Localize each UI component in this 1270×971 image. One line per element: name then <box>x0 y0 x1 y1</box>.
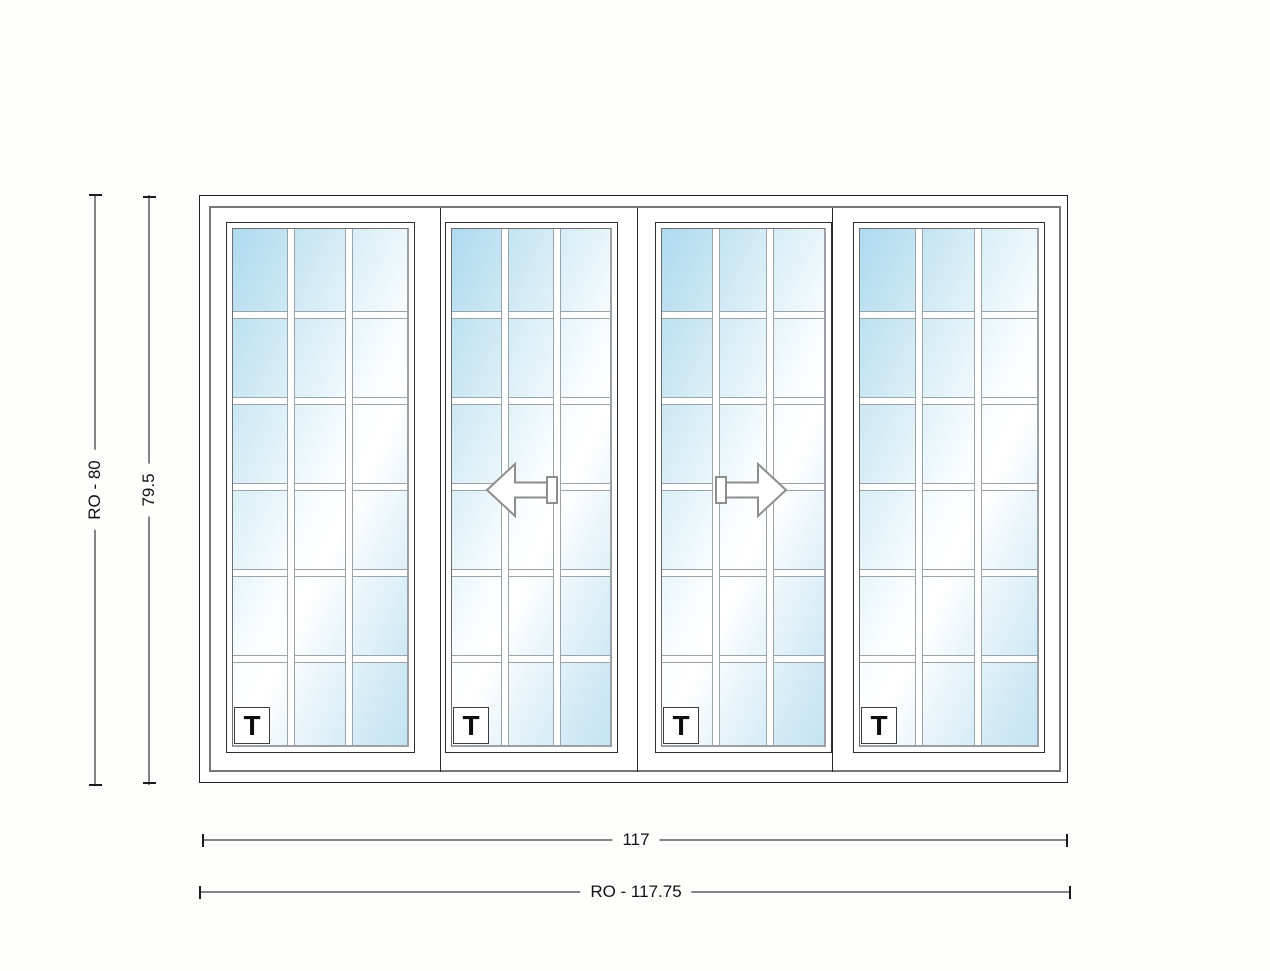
muntin-bar-horizontal <box>860 569 1037 577</box>
door-panel-4: T <box>853 222 1045 753</box>
muntin-bar-vertical <box>287 229 295 745</box>
muntin-bar-horizontal <box>662 397 824 405</box>
dimension-tick <box>1069 886 1071 899</box>
muntin-bar-horizontal <box>233 397 407 405</box>
dimension-label-height-ro: RO - 80 <box>83 450 107 530</box>
muntin-bar-horizontal <box>662 569 824 577</box>
dimension-label-width-frame: 117 <box>612 828 659 852</box>
slide-direction-right-arrow-icon <box>710 461 788 519</box>
door-panel-1: T <box>226 222 415 753</box>
dimension-label-height-frame: 79.5 <box>137 463 161 516</box>
muntin-bar-horizontal <box>662 655 824 663</box>
tempered-glass-label: T <box>663 707 699 744</box>
frame-divider-2 <box>637 208 638 772</box>
dimension-tick <box>199 886 201 899</box>
muntin-bar-vertical <box>345 229 353 745</box>
muntin-bar-horizontal <box>233 569 407 577</box>
muntin-bar-vertical <box>974 229 982 745</box>
dimension-tick <box>89 194 102 196</box>
muntin-bar-horizontal <box>233 483 407 491</box>
muntin-bar-vertical <box>915 229 923 745</box>
dimension-tick <box>143 196 156 198</box>
muntin-bar-horizontal <box>662 311 824 319</box>
muntin-bar-horizontal <box>452 397 610 405</box>
muntin-bar-horizontal <box>452 655 610 663</box>
tempered-glass-label: T <box>861 707 897 744</box>
frame-divider-3 <box>832 208 833 772</box>
muntin-bar-horizontal <box>452 569 610 577</box>
muntin-bar-horizontal <box>233 655 407 663</box>
muntin-bar-horizontal <box>233 311 407 319</box>
tempered-glass-label: T <box>234 707 270 744</box>
dimension-tick <box>202 834 204 847</box>
muntin-bar-horizontal <box>860 311 1037 319</box>
slide-direction-left-arrow-icon <box>485 461 563 519</box>
window-elevation-drawing: T T T T RO - 80 79.5 117 <box>0 0 1270 971</box>
dimension-label-width-ro: RO - 117.75 <box>580 880 691 904</box>
muntin-bar-horizontal <box>860 655 1037 663</box>
glass: T <box>859 228 1039 747</box>
muntin-bar-horizontal <box>452 311 610 319</box>
frame-divider-1 <box>440 208 441 772</box>
tempered-glass-label: T <box>453 707 489 744</box>
muntin-bar-horizontal <box>860 397 1037 405</box>
dimension-tick <box>89 784 102 786</box>
dimension-tick <box>143 782 156 784</box>
glass: T <box>232 228 409 747</box>
dimension-tick <box>1066 834 1068 847</box>
muntin-bar-horizontal <box>860 483 1037 491</box>
